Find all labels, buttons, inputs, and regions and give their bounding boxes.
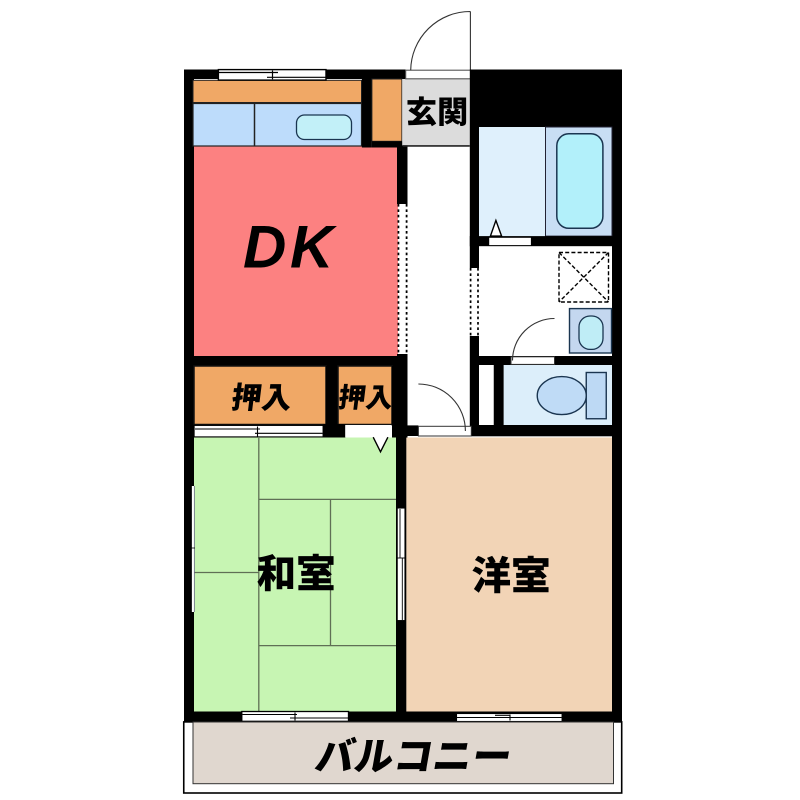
svg-text:K: K xyxy=(290,214,337,281)
svg-text:D: D xyxy=(243,214,286,281)
